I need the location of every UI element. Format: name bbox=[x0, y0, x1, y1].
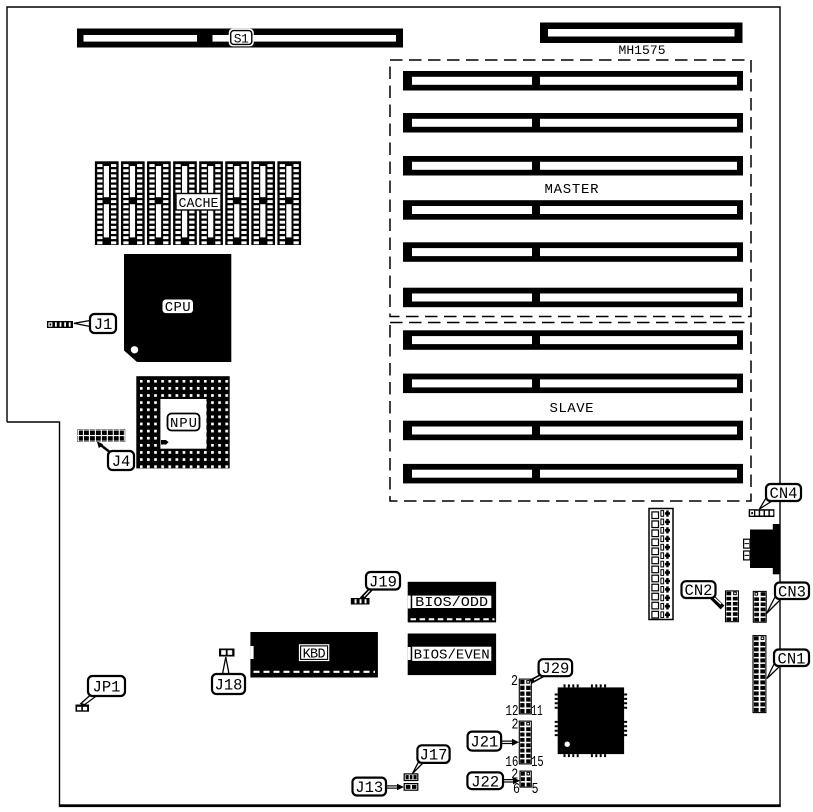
svg-text:CN2: CN2 bbox=[685, 582, 713, 600]
svg-text:CN1: CN1 bbox=[778, 650, 806, 668]
svg-text:JP1: JP1 bbox=[93, 679, 121, 697]
svg-text:S1: S1 bbox=[234, 32, 249, 47]
svg-text:J1: J1 bbox=[94, 316, 113, 334]
svg-text:SLAVE: SLAVE bbox=[550, 401, 594, 417]
svg-text:11: 11 bbox=[531, 704, 543, 720]
svg-text:BIOS/ODD: BIOS/ODD bbox=[415, 595, 488, 611]
svg-text:6: 6 bbox=[513, 782, 520, 798]
svg-text:CN4: CN4 bbox=[770, 485, 798, 503]
svg-text:J17: J17 bbox=[420, 747, 448, 765]
svg-text:J22: J22 bbox=[471, 773, 499, 791]
svg-text:CN3: CN3 bbox=[778, 583, 806, 601]
svg-text:J29: J29 bbox=[541, 660, 569, 678]
svg-text:CACHE: CACHE bbox=[179, 196, 219, 212]
svg-text:5: 5 bbox=[532, 782, 539, 798]
svg-text:CPU: CPU bbox=[165, 300, 191, 316]
svg-text:J4: J4 bbox=[112, 453, 131, 471]
svg-text:MH1575: MH1575 bbox=[619, 43, 666, 58]
svg-text:J19: J19 bbox=[369, 573, 397, 591]
svg-text:J18: J18 bbox=[215, 677, 243, 695]
svg-text:BIOS/EVEN: BIOS/EVEN bbox=[414, 647, 490, 663]
svg-text:2: 2 bbox=[512, 718, 519, 734]
svg-text:MASTER: MASTER bbox=[545, 182, 600, 198]
svg-text:J21: J21 bbox=[470, 734, 498, 752]
svg-text:15: 15 bbox=[531, 755, 544, 771]
svg-text:J13: J13 bbox=[355, 779, 383, 797]
svg-text:KBD: KBD bbox=[303, 647, 326, 662]
svg-text:NPU: NPU bbox=[170, 416, 197, 432]
svg-text:2: 2 bbox=[511, 674, 518, 690]
